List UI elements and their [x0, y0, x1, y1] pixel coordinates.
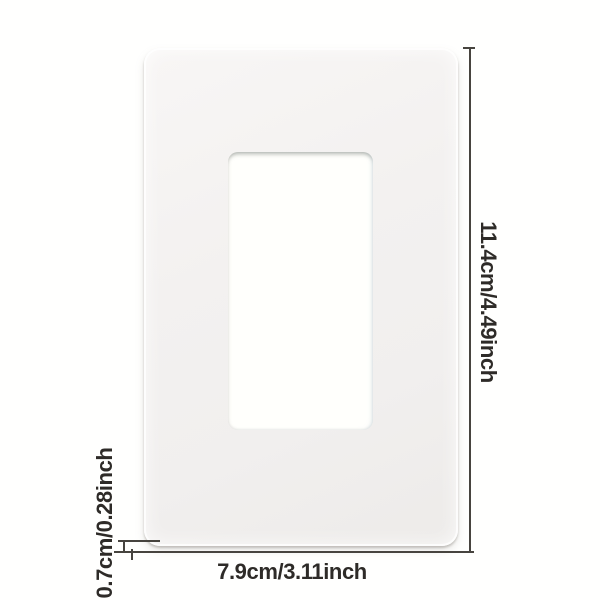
product-image: 11.4cm/4.49inch 7.9cm/3.11inch 0.7cm/0.2…	[0, 0, 600, 600]
height-dimension-label: 11.4cm/4.49inch	[477, 220, 501, 384]
width-dimension-left-cap	[131, 549, 133, 560]
width-dimension-label: 7.9cm/3.11inch	[192, 559, 392, 583]
height-dimension-top-cap	[463, 47, 475, 49]
wall-plate	[144, 48, 458, 546]
thickness-dimension-label: 0.7cm/0.28inch	[92, 445, 116, 600]
plate-cutout	[228, 152, 373, 430]
thickness-dimension-connector	[123, 540, 125, 552]
height-dimension-line	[469, 48, 471, 552]
width-dimension-line	[114, 551, 470, 553]
